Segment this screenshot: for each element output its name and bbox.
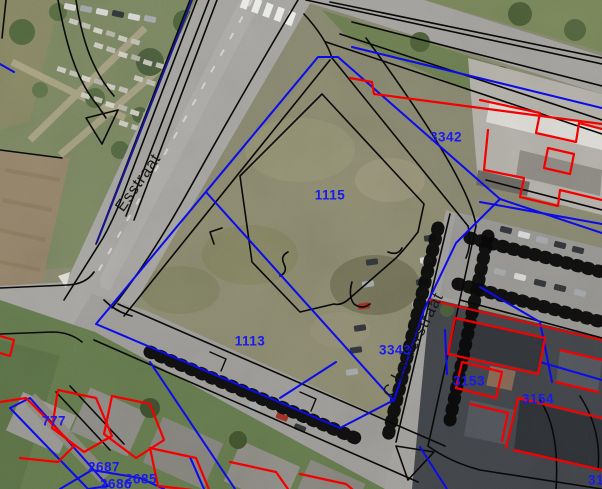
map-canvas[interactable] xyxy=(0,0,602,489)
aerial-map-view[interactable]: 1115111333423343315331547772687268626853… xyxy=(0,0,602,489)
